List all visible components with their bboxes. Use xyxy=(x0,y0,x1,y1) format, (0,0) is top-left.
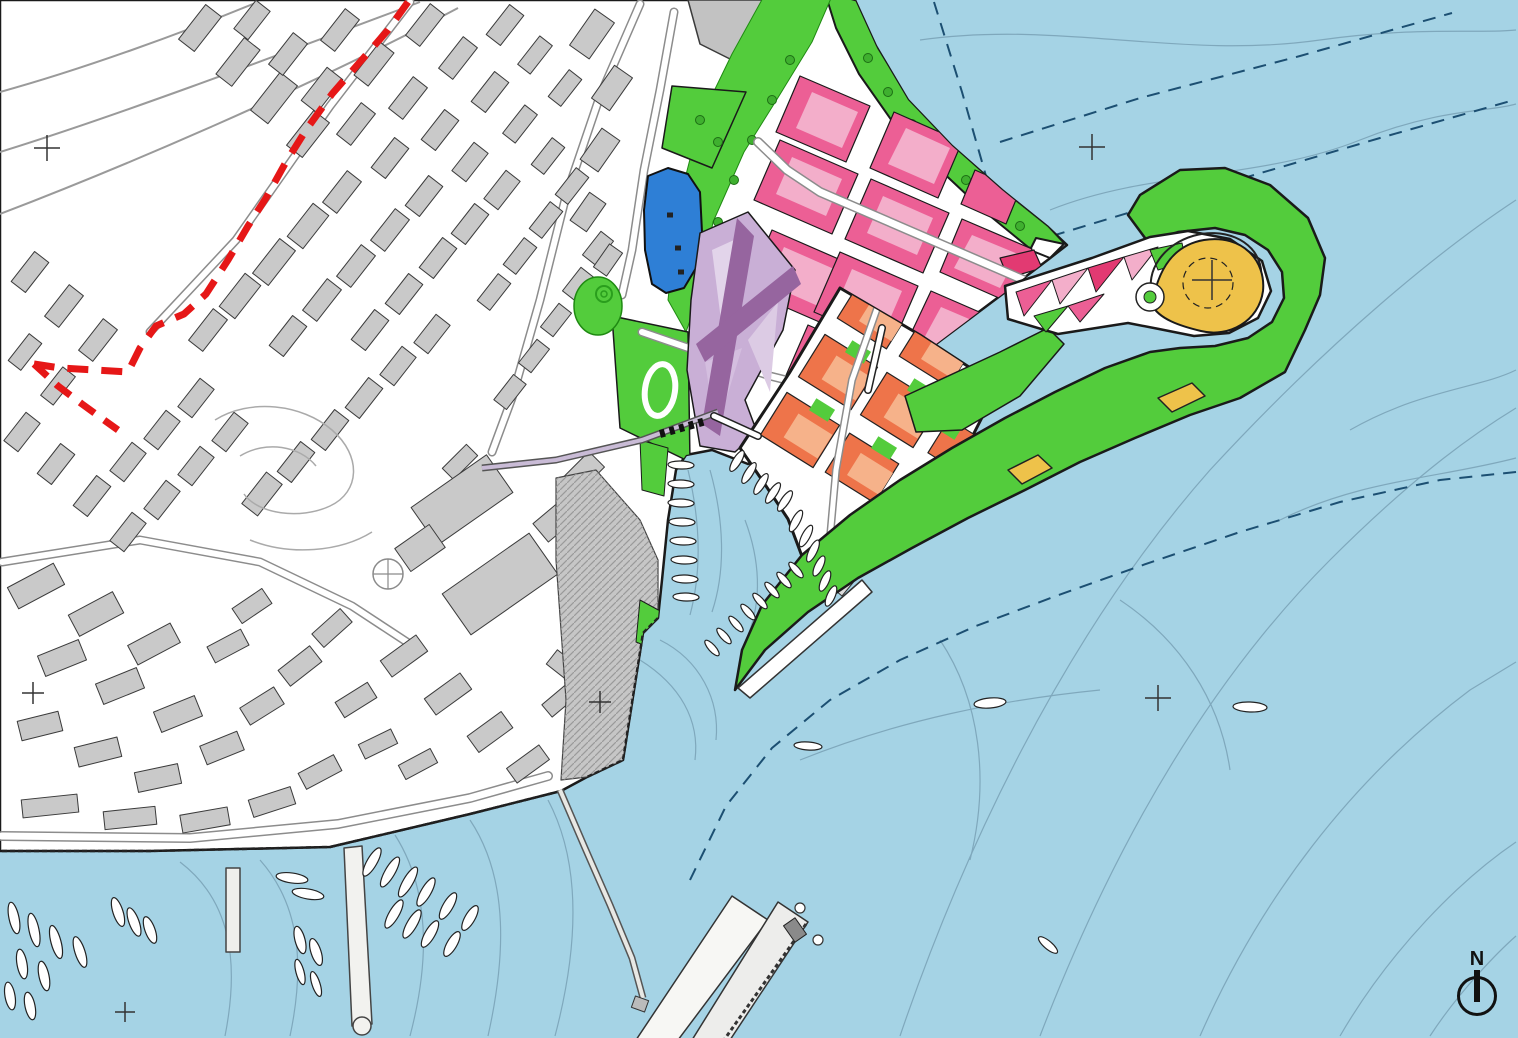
map-root xyxy=(0,0,1518,1038)
small-loop-green xyxy=(1144,291,1156,303)
boat xyxy=(668,480,694,489)
pond-structures xyxy=(678,270,684,275)
boat xyxy=(668,461,694,470)
pond xyxy=(644,168,702,293)
green-wedge xyxy=(640,440,668,496)
pier-head xyxy=(353,1017,371,1035)
green-oval xyxy=(574,277,622,335)
boat xyxy=(672,575,698,584)
trees xyxy=(1016,222,1025,231)
pond-structures xyxy=(667,213,673,218)
trees xyxy=(884,88,893,97)
trees xyxy=(696,116,705,125)
masterplan-svg xyxy=(0,0,1518,1038)
boat xyxy=(669,518,695,527)
pond-structures xyxy=(675,246,681,251)
masterplan-map: N xyxy=(0,0,1518,1038)
trees xyxy=(864,54,873,63)
boat xyxy=(670,537,696,546)
north-arrow: N xyxy=(1450,948,1510,1028)
boat xyxy=(671,556,697,565)
boat xyxy=(673,593,699,602)
trees xyxy=(768,96,777,105)
pier xyxy=(226,868,240,952)
trees xyxy=(714,138,723,147)
boat xyxy=(668,499,694,508)
trees xyxy=(730,176,739,185)
jetty-knob xyxy=(813,935,823,945)
jetty-knob xyxy=(795,903,805,913)
north-arrow-circle xyxy=(1457,976,1497,1016)
north-label: N xyxy=(1450,948,1504,971)
trees xyxy=(786,56,795,65)
